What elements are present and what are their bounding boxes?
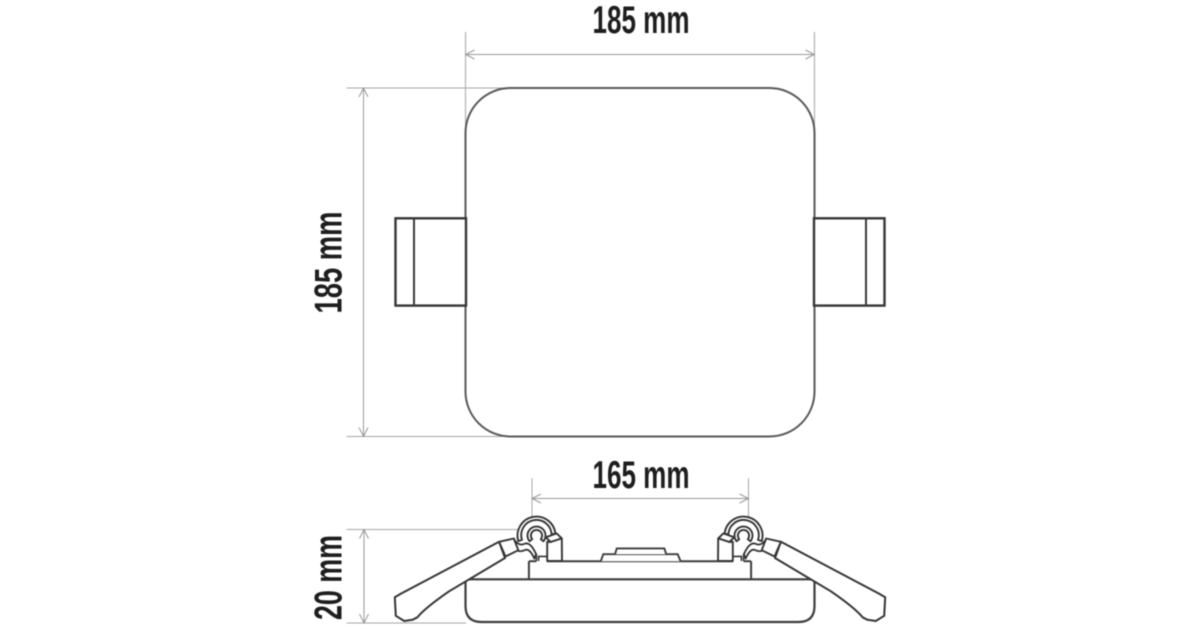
svg-text:185 mm: 185 mm xyxy=(593,0,690,42)
svg-text:165 mm: 165 mm xyxy=(593,454,690,497)
svg-text:185 mm: 185 mm xyxy=(308,212,351,314)
svg-text:20 mm: 20 mm xyxy=(308,535,351,620)
